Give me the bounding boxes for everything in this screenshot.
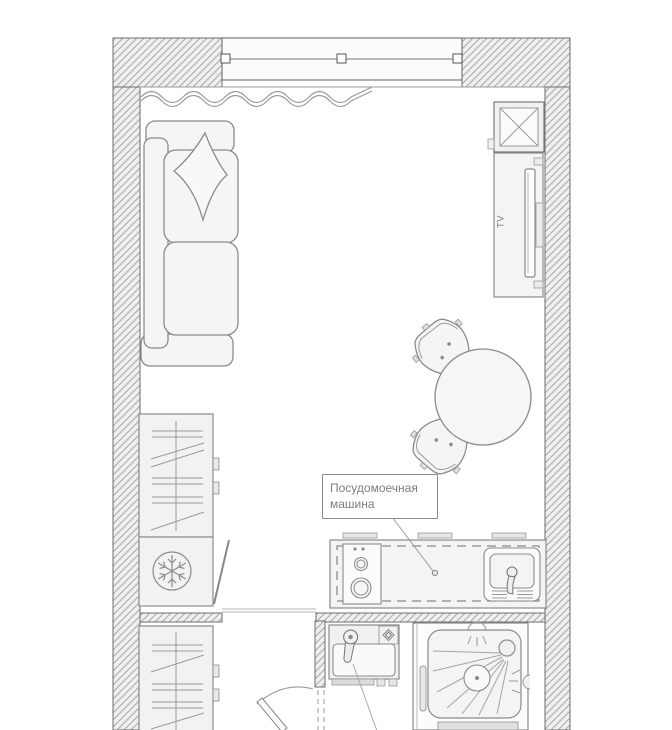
wall-bathroom-divider [315, 621, 325, 687]
curtain [141, 87, 372, 107]
wall-top-left [113, 38, 222, 87]
floor-plan-svg [0, 0, 672, 730]
shower-head-icon [499, 640, 515, 656]
leader-dot-icon [432, 570, 437, 575]
sofa-cushion [164, 242, 238, 335]
bathroom-door-swing [257, 687, 324, 730]
door-leaf [214, 540, 229, 604]
floor-plan: TV Посудомоечная машина [0, 0, 672, 730]
wall-top-right [462, 38, 570, 87]
dining-set [399, 306, 531, 487]
window-mullion-icon [221, 54, 230, 63]
cabinet-handle-icon [418, 533, 452, 538]
burner-icon [355, 558, 368, 571]
shower [413, 622, 530, 730]
cabinet-handle-icon [492, 533, 526, 538]
tv-screen [525, 169, 535, 277]
dining-table [435, 349, 531, 445]
window-mullion-icon [337, 54, 346, 63]
dishwasher-callout-line1: Посудомоечная [330, 480, 430, 496]
stove [343, 544, 381, 604]
washbasin [329, 625, 399, 730]
wall-bottom-left-segment [140, 613, 222, 622]
wall-right [545, 38, 570, 730]
fridge [139, 537, 213, 606]
shower-handle [420, 666, 426, 711]
dishwasher-callout-line2: машина [330, 496, 430, 512]
kitchen-counter [330, 513, 546, 608]
dishwasher-callout: Посудомоечная машина [322, 474, 438, 519]
window-mullion-icon [453, 54, 462, 63]
door-living [214, 540, 316, 612]
sofa [141, 121, 238, 366]
shower-step [438, 722, 518, 730]
wardrobe-hall [139, 626, 219, 730]
cabinet-handle-icon [343, 533, 377, 538]
wall-bottom-right-segment [316, 613, 545, 622]
ventilation-shaft [488, 102, 544, 152]
kitchen-sink [484, 548, 540, 601]
wall-left [113, 38, 140, 730]
door-leaf [257, 698, 287, 730]
tv-text-label: TV [496, 209, 509, 235]
wardrobe-living [139, 414, 219, 537]
